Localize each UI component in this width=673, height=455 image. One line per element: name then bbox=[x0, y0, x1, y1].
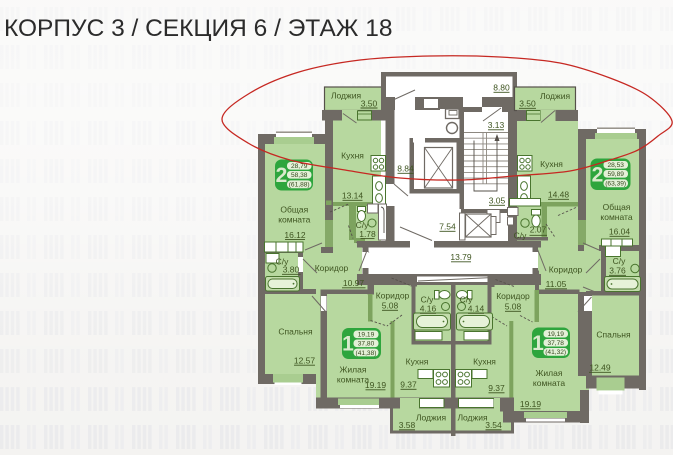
svg-text:Коридор: Коридор bbox=[376, 291, 410, 301]
svg-text:КОРПУС 3 / СЕКЦИЯ 6 / ЭТАЖ 18: КОРПУС 3 / СЕКЦИЯ 6 / ЭТАЖ 18 bbox=[4, 15, 392, 42]
svg-text:4.16: 4.16 bbox=[420, 304, 437, 314]
svg-text:16.12: 16.12 bbox=[284, 230, 306, 240]
svg-text:комната: комната bbox=[600, 212, 632, 222]
svg-text:3.54: 3.54 bbox=[485, 420, 502, 430]
svg-text:(61,88): (61,88) bbox=[289, 182, 310, 189]
svg-text:Лоджия: Лоджия bbox=[457, 413, 488, 423]
svg-text:Коридор: Коридор bbox=[496, 291, 530, 301]
svg-text:37,78: 37,78 bbox=[547, 340, 564, 347]
svg-text:(41,38): (41,38) bbox=[356, 350, 377, 357]
svg-text:Спальня: Спальня bbox=[596, 330, 631, 340]
svg-text:2.07: 2.07 bbox=[530, 225, 547, 235]
svg-text:Лоджия: Лоджия bbox=[416, 413, 447, 423]
svg-text:4.14: 4.14 bbox=[468, 304, 485, 314]
svg-text:Кухня: Кухня bbox=[540, 159, 563, 169]
svg-text:5.08: 5.08 bbox=[382, 301, 399, 311]
svg-text:комната: комната bbox=[533, 378, 565, 388]
svg-text:16.04: 16.04 bbox=[609, 227, 631, 237]
svg-text:7.54: 7.54 bbox=[439, 222, 456, 232]
svg-text:Кухня: Кухня bbox=[406, 357, 429, 367]
svg-text:3.05: 3.05 bbox=[489, 196, 506, 206]
svg-text:9.37: 9.37 bbox=[488, 383, 505, 393]
svg-text:19,19: 19,19 bbox=[358, 332, 375, 339]
svg-text:8.80: 8.80 bbox=[493, 83, 510, 93]
svg-text:58,38: 58,38 bbox=[291, 172, 308, 179]
svg-text:Лоджия: Лоджия bbox=[331, 91, 362, 101]
svg-text:1: 1 bbox=[532, 332, 544, 355]
svg-text:59,89: 59,89 bbox=[607, 171, 624, 178]
svg-text:14.48: 14.48 bbox=[548, 190, 570, 200]
svg-text:3.50: 3.50 bbox=[519, 99, 536, 109]
svg-text:1: 1 bbox=[342, 333, 354, 356]
svg-text:3.80: 3.80 bbox=[283, 265, 300, 275]
svg-text:С/у: С/у bbox=[613, 256, 627, 266]
svg-text:1.78: 1.78 bbox=[359, 229, 376, 239]
svg-text:3.58: 3.58 bbox=[399, 420, 416, 430]
svg-text:(41,32): (41,32) bbox=[545, 349, 566, 356]
svg-text:13.14: 13.14 bbox=[342, 191, 364, 201]
svg-text:28,53: 28,53 bbox=[607, 162, 624, 169]
svg-text:Общая: Общая bbox=[280, 205, 308, 215]
svg-text:С/у: С/у bbox=[514, 231, 528, 241]
svg-text:8.84: 8.84 bbox=[397, 164, 414, 174]
svg-text:19.19: 19.19 bbox=[365, 380, 387, 390]
svg-text:12.49: 12.49 bbox=[589, 363, 611, 373]
svg-text:Кухня: Кухня bbox=[473, 357, 496, 367]
svg-text:19.19: 19.19 bbox=[520, 399, 542, 409]
svg-text:3.13: 3.13 bbox=[488, 120, 505, 130]
svg-text:Коридор: Коридор bbox=[549, 265, 583, 275]
svg-text:Спальня: Спальня bbox=[278, 327, 313, 337]
svg-text:Лоджия: Лоджия bbox=[540, 91, 571, 101]
svg-text:3.50: 3.50 bbox=[361, 99, 378, 109]
svg-text:19,19: 19,19 bbox=[547, 331, 564, 338]
svg-text:Коридор: Коридор bbox=[315, 263, 349, 273]
svg-text:Жилая: Жилая bbox=[536, 368, 563, 378]
svg-text:10.97: 10.97 bbox=[343, 278, 365, 288]
svg-text:13.79: 13.79 bbox=[450, 252, 472, 262]
svg-text:(63,39): (63,39) bbox=[605, 181, 626, 188]
svg-text:2: 2 bbox=[276, 164, 288, 187]
svg-text:12.57: 12.57 bbox=[294, 356, 316, 366]
svg-text:Общая: Общая bbox=[603, 202, 631, 212]
svg-text:Кухня: Кухня bbox=[341, 151, 364, 161]
svg-text:комната: комната bbox=[278, 215, 310, 225]
svg-text:5.08: 5.08 bbox=[505, 302, 522, 312]
svg-text:2: 2 bbox=[592, 164, 604, 187]
svg-text:3.76: 3.76 bbox=[609, 266, 626, 276]
svg-text:37,80: 37,80 bbox=[358, 341, 375, 348]
svg-text:Жилая: Жилая bbox=[340, 365, 367, 375]
svg-text:11.05: 11.05 bbox=[546, 279, 567, 289]
svg-text:9.37: 9.37 bbox=[400, 380, 417, 390]
